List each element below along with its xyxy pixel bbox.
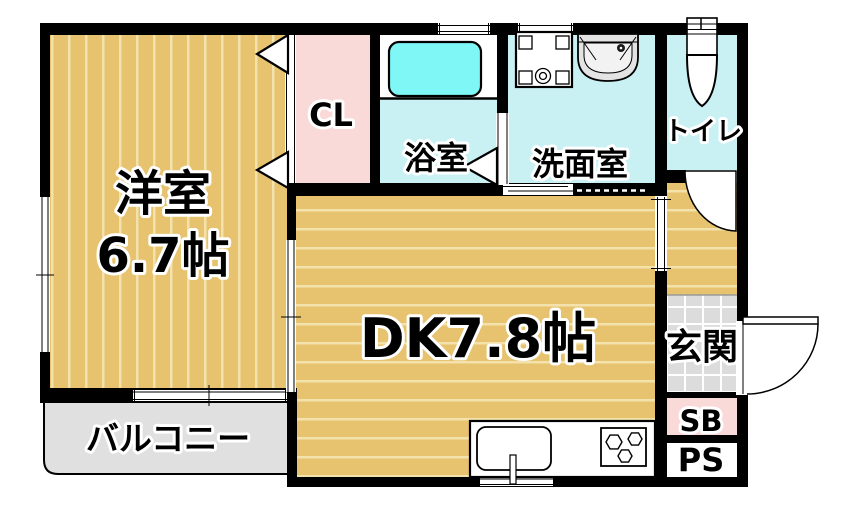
label-dk: DK7.8帖 [360, 307, 596, 370]
washbasin-icon [578, 34, 638, 81]
label-toilet: トイレ [664, 117, 742, 147]
bathtub-icon [380, 35, 497, 99]
floorplan: 洋室 6.7帖 CL 浴室 洗面室 トイレ DK7.8帖 玄関 SB PS バル… [0, 0, 859, 511]
wall-dk-hall [655, 270, 667, 477]
burner-icon [628, 433, 642, 445]
label-bathroom: 浴室 [404, 139, 468, 177]
label-washroom: 洗面室 [532, 145, 628, 183]
label-pipe-space: PS [678, 441, 725, 479]
kitchen-faucet [510, 455, 516, 484]
label-shoe-box: SB [680, 404, 723, 438]
wall-entrance-sb [655, 392, 748, 398]
label-entrance: 玄関 [666, 327, 738, 368]
kitchen-counter [470, 421, 655, 484]
wall-east [737, 23, 748, 487]
wall-washroom-toilet [655, 23, 667, 183]
burner-icon [618, 450, 632, 462]
label-western-room: 洋室 [115, 166, 211, 222]
label-balcony: バルコニー [86, 419, 250, 458]
window-north-bath [438, 23, 490, 34]
burner-icon [606, 435, 622, 449]
toilet-icon [687, 18, 717, 106]
label-closet: CL [309, 96, 353, 134]
washing-machine-icon [516, 32, 572, 87]
label-western-room-size: 6.7帖 [96, 228, 229, 284]
wall-north [40, 23, 748, 35]
stove-icon [601, 428, 646, 466]
wall-partition-lower [287, 392, 297, 487]
wall-closet-bath [370, 35, 380, 183]
entrance-door-leaf [743, 317, 818, 324]
wall-dk-north [287, 183, 667, 196]
